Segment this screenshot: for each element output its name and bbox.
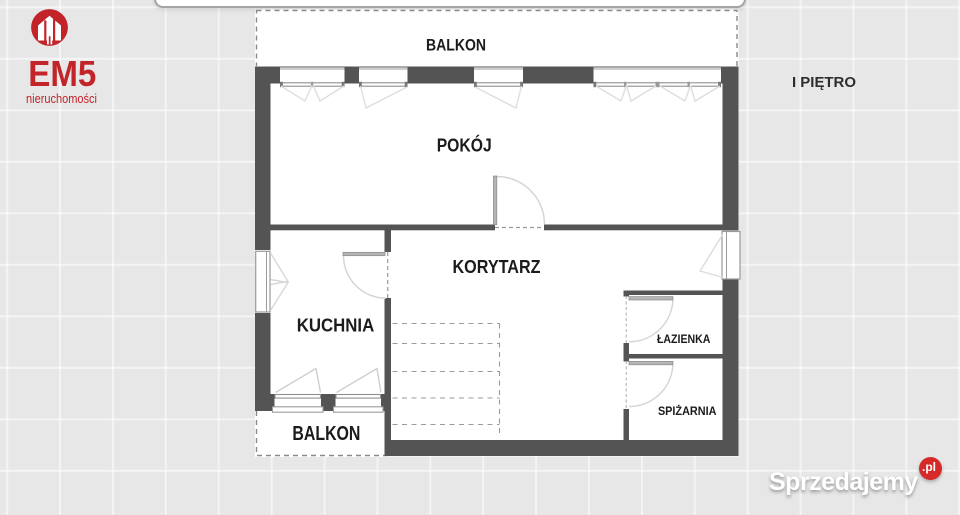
svg-text:SPIŻARNIA: SPIŻARNIA [658,403,717,418]
svg-text:BALKON: BALKON [426,37,486,55]
svg-text:ŁAZIENKA: ŁAZIENKA [657,332,711,346]
svg-text:BALKON: BALKON [292,423,360,445]
svg-text:POKÓJ: POKÓJ [437,134,492,155]
svg-text:KUCHNIA: KUCHNIA [297,315,375,336]
svg-text:I PIĘTRO: I PIĘTRO [792,75,856,91]
svg-text:nieruchomości: nieruchomości [26,91,97,106]
svg-text:EM5: EM5 [28,53,96,94]
svg-text:KORYTARZ: KORYTARZ [453,256,541,277]
